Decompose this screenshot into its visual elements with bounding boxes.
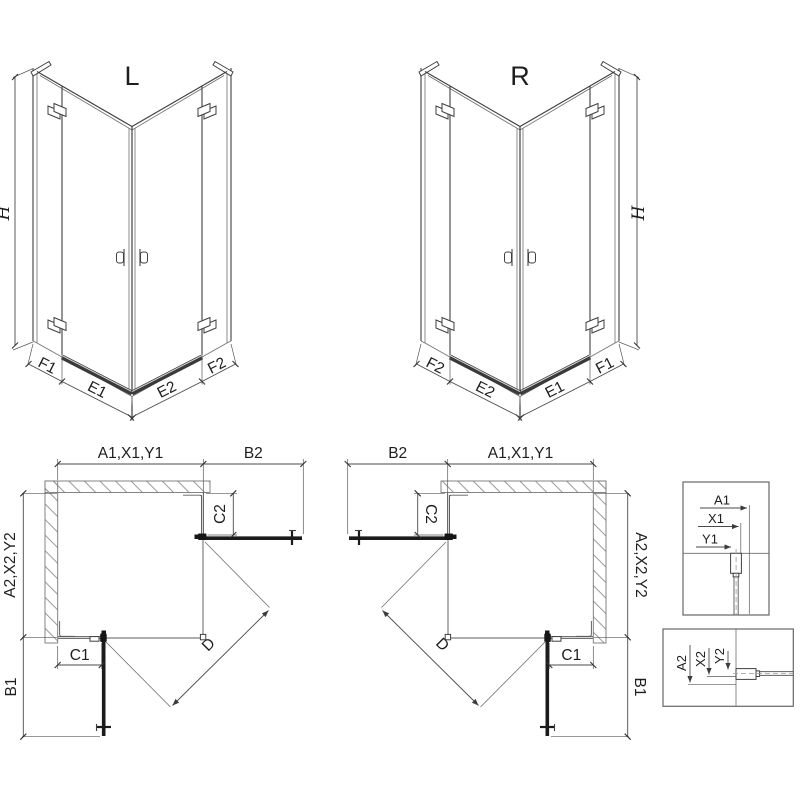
iso-left-height-label: H: [0, 204, 14, 221]
plan-left-fixed-right-label: C2: [212, 504, 229, 524]
iso-view-right: R H F2 E2 E1 F1: [414, 61, 650, 421]
iso-right-seg-f1: F1: [593, 354, 617, 377]
plan-left-door-side-label: B1: [3, 678, 20, 697]
detail-h-dim-x2: X2: [693, 651, 708, 667]
detail-horizontal-profile: A2 X2 Y2: [663, 629, 793, 706]
plan-right-fixed-left-label: C2: [422, 504, 439, 524]
iso-right-seg-f2: F2: [423, 354, 447, 377]
detail-vertical-profile: A1 X1 Y1: [683, 482, 769, 615]
iso-left-seg-f2: F2: [205, 354, 229, 377]
iso-right-title: R: [510, 61, 530, 91]
detail-v-dim-a1: A1: [714, 493, 730, 508]
plan-right-door-side-label: B1: [631, 678, 648, 697]
iso-view-left: L H F1 E1 E2 F2: [0, 61, 239, 421]
detail-v-dim-y1: Y1: [702, 532, 718, 547]
detail-v-dim-x1: X1: [708, 511, 724, 526]
plan-left-walls: [45, 481, 210, 643]
plan-right-walls: [441, 481, 606, 643]
technical-diagram: L H F1 E1 E2 F2 R H F2 E2 E1 F1 A1,X1,Y1…: [0, 0, 800, 800]
plan-left-width-label: A1,X1,Y1: [98, 445, 164, 462]
plan-right-width-label: A1,X1,Y1: [488, 445, 554, 462]
detail-h-dim-y2: Y2: [712, 648, 727, 664]
plan-right-depth-label: A2,X2,Y2: [632, 532, 649, 598]
detail-h-dim-a2: A2: [674, 655, 689, 671]
iso-left-title: L: [124, 61, 139, 91]
plan-right-fixed-bottom-label: C1: [561, 647, 581, 664]
iso-left-seg-f1: F1: [35, 354, 59, 377]
page: L H F1 E1 E2 F2 R H F2 E2 E1 F1 A1,X1,Y1…: [0, 0, 800, 800]
plan-left-fixed-bottom-label: C1: [70, 647, 90, 664]
iso-right-height-label: H: [629, 204, 649, 221]
plan-left-depth-label: A2,X2,Y2: [2, 532, 19, 598]
plan-right-door-top-label: B2: [388, 445, 407, 462]
plan-left-door-top-label: B2: [244, 445, 263, 462]
